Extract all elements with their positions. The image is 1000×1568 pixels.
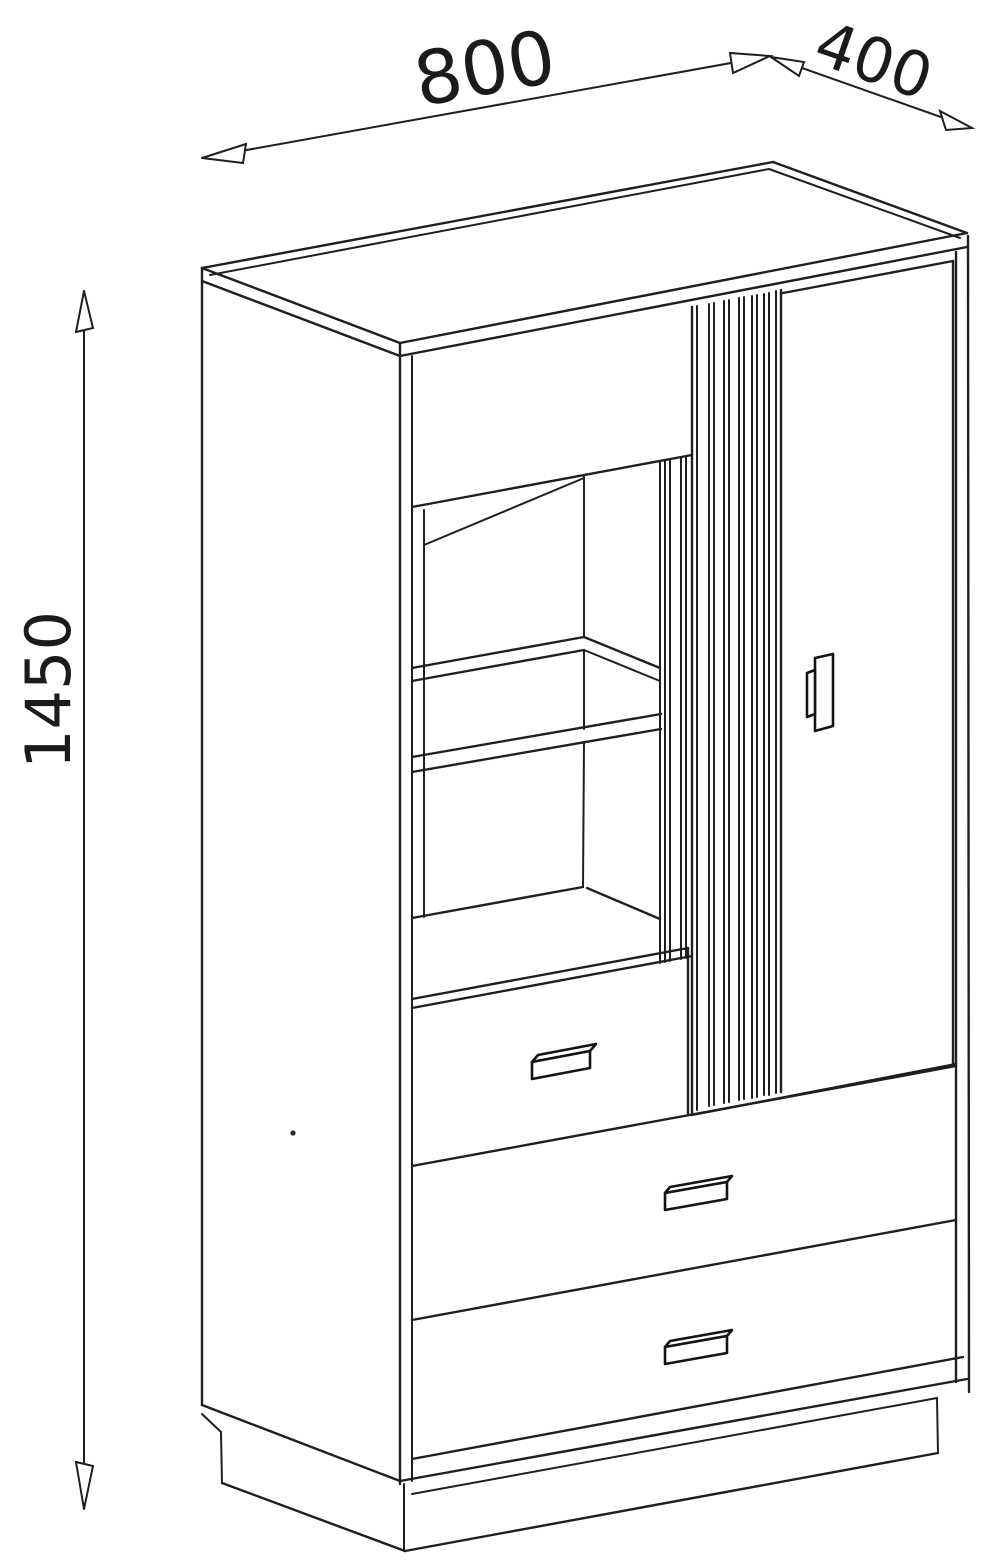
shelf-1 [412, 637, 660, 681]
arrowhead-depth-right-icon [940, 111, 972, 130]
dimension-width: 800 [202, 14, 770, 163]
cabinet-door [692, 261, 956, 1115]
technical-drawing-canvas: 800 400 1450 [0, 0, 1000, 1568]
dimension-height: 1450 [12, 291, 93, 1509]
cabinet-top-face [202, 162, 967, 356]
arrowhead-width-right-icon [730, 53, 770, 73]
drawer-2 [412, 1066, 956, 1210]
drawer-3-handle [665, 1330, 732, 1364]
drawer-2-handle [665, 1176, 732, 1210]
cabinet-left-side-panel [202, 268, 400, 1481]
compartment-floor [412, 887, 660, 919]
slat-panel [692, 290, 781, 1113]
arrowhead-width-left-icon [202, 144, 246, 163]
shelf-2 [412, 714, 661, 772]
stray-mark [290, 1130, 295, 1135]
arrowhead-height-bottom-icon [76, 1462, 93, 1509]
drawer-1 [412, 948, 692, 1114]
dimension-width-label: 800 [408, 14, 562, 124]
cabinet-plinth [221, 1398, 938, 1551]
dimension-depth: 400 [771, 6, 972, 130]
dimension-height-label: 1450 [12, 611, 85, 769]
drawer-1-handle [532, 1044, 596, 1079]
drawer-3 [412, 1220, 956, 1364]
arrowhead-depth-left-icon [771, 57, 804, 76]
dimension-depth-label: 400 [806, 6, 942, 114]
arrowhead-height-top-icon [76, 291, 93, 332]
cabinet-drawing: 800 400 1450 [0, 0, 1000, 1568]
door-handle [807, 654, 833, 731]
cabinet-front-frame [400, 236, 969, 1484]
open-compartment [412, 455, 692, 963]
